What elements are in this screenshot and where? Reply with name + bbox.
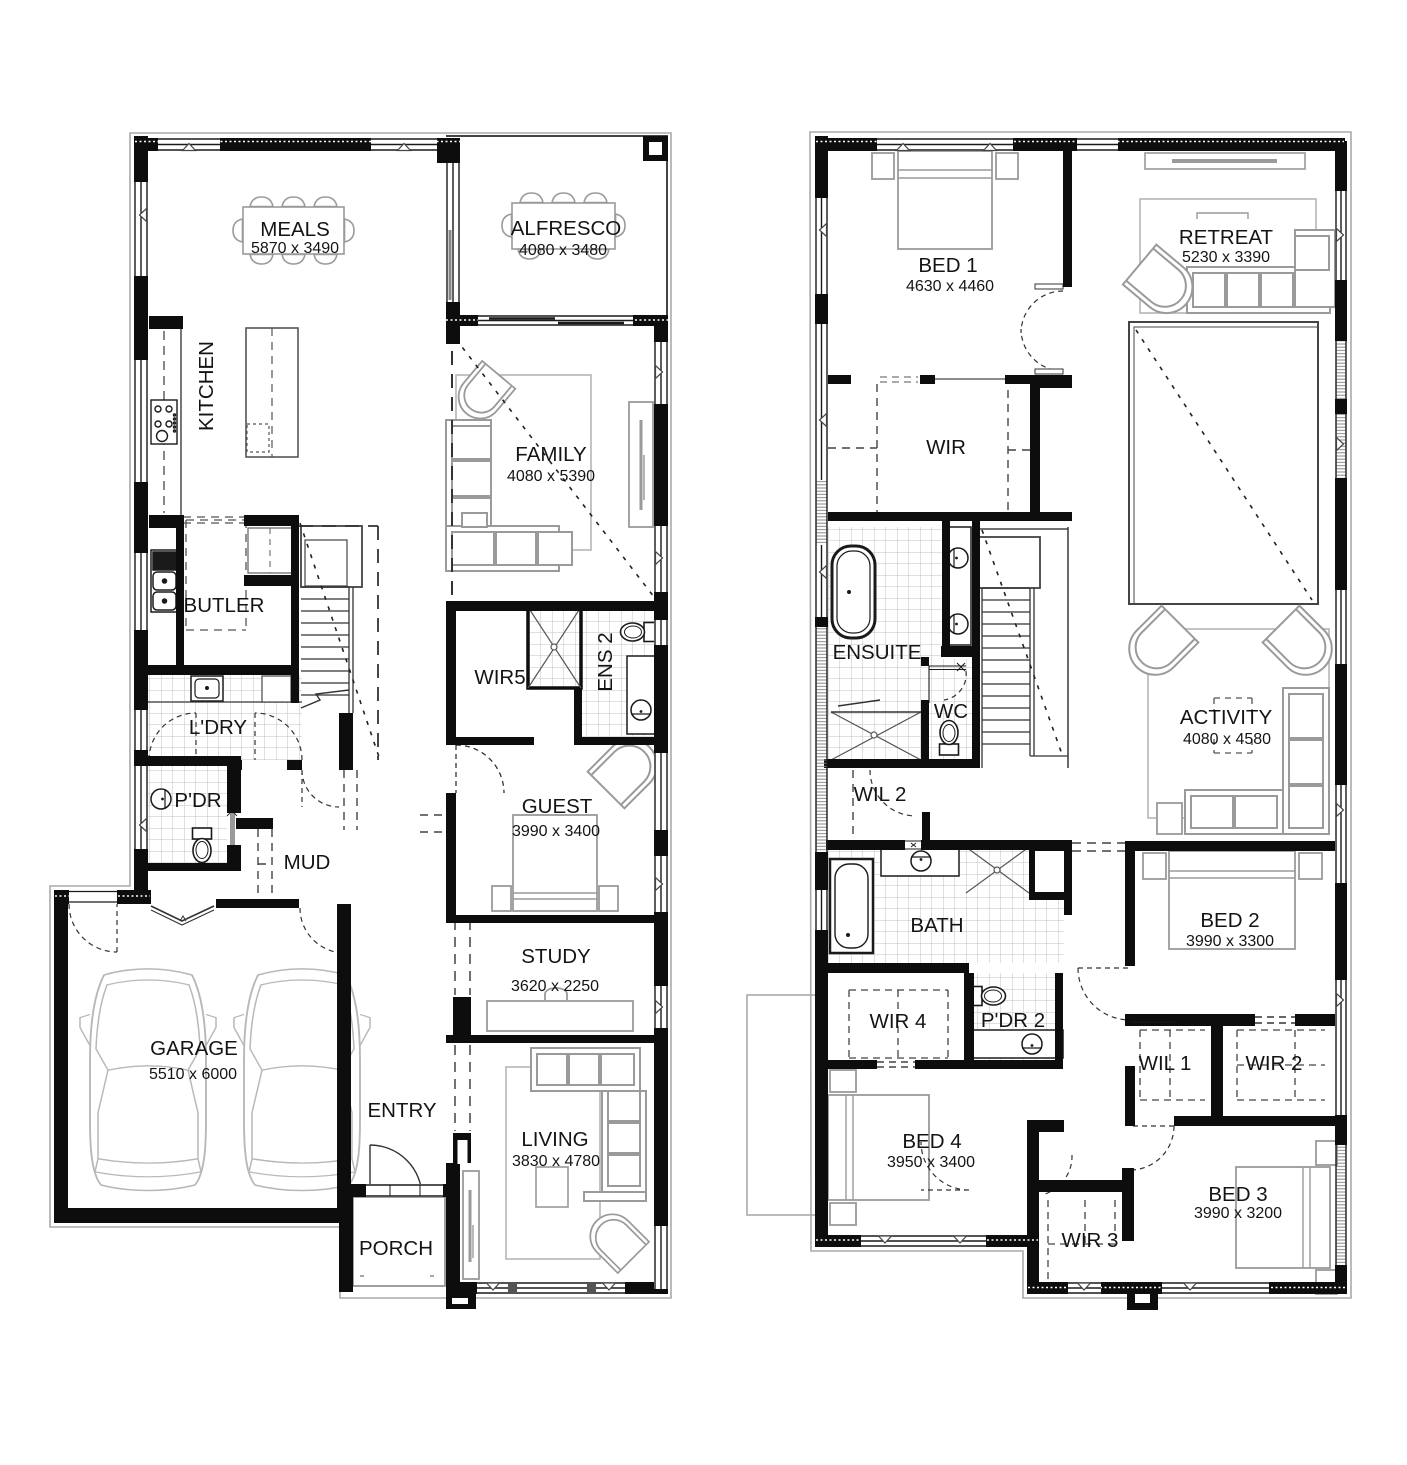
svg-text:WIL 2: WIL 2 <box>854 783 907 806</box>
svg-text:4080 x 5390: 4080 x 5390 <box>507 468 595 485</box>
svg-text:STUDY: STUDY <box>521 945 591 968</box>
svg-text:4080 x 3480: 4080 x 3480 <box>519 242 607 259</box>
svg-text:MUD: MUD <box>284 851 331 874</box>
svg-text:5230 x 3390: 5230 x 3390 <box>1182 249 1270 266</box>
svg-text:4080 x 4580: 4080 x 4580 <box>1183 731 1271 748</box>
svg-text:FAMILY: FAMILY <box>515 443 587 466</box>
svg-text:WIR 4: WIR 4 <box>870 1010 927 1033</box>
svg-text:BED 2: BED 2 <box>1200 909 1259 932</box>
svg-text:BED 4: BED 4 <box>902 1130 961 1153</box>
svg-text:MEALS: MEALS <box>260 218 330 241</box>
svg-text:3990 x 3300: 3990 x 3300 <box>1186 933 1274 950</box>
svg-text:WIR 3: WIR 3 <box>1062 1229 1119 1252</box>
svg-text:3620 x 2250: 3620 x 2250 <box>511 978 599 995</box>
svg-text:5510 x 6000: 5510 x 6000 <box>149 1066 237 1083</box>
svg-text:GARAGE: GARAGE <box>150 1037 238 1060</box>
svg-text:LIVING: LIVING <box>521 1128 588 1151</box>
svg-text:ACTIVITY: ACTIVITY <box>1180 706 1273 729</box>
svg-text:BED 1: BED 1 <box>918 254 977 277</box>
svg-text:ALFRESCO: ALFRESCO <box>511 217 622 240</box>
svg-text:5870 x 3490: 5870 x 3490 <box>251 240 339 257</box>
svg-text:ENTRY: ENTRY <box>367 1099 436 1122</box>
svg-text:ENSUITE: ENSUITE <box>833 641 922 664</box>
svg-text:BUTLER: BUTLER <box>184 594 265 617</box>
svg-text:WIR5: WIR5 <box>474 666 525 689</box>
svg-text:4630 x 4460: 4630 x 4460 <box>906 278 994 295</box>
svg-text:BED 3: BED 3 <box>1208 1183 1267 1206</box>
svg-text:P'DR 2: P'DR 2 <box>981 1009 1045 1032</box>
svg-text:3990 x 3200: 3990 x 3200 <box>1194 1205 1282 1222</box>
svg-text:GUEST: GUEST <box>522 795 593 818</box>
svg-text:L'DRY: L'DRY <box>189 716 248 739</box>
svg-text:KITCHEN: KITCHEN <box>195 341 218 431</box>
svg-text:WIR: WIR <box>926 436 966 459</box>
svg-text:P'DR: P'DR <box>174 789 221 812</box>
svg-text:3830 x 4780: 3830 x 4780 <box>512 1153 600 1170</box>
svg-text:PORCH: PORCH <box>359 1237 433 1260</box>
svg-text:3990 x 3400: 3990 x 3400 <box>512 823 600 840</box>
svg-text:ENS 2: ENS 2 <box>594 632 617 691</box>
svg-text:WIR 2: WIR 2 <box>1246 1052 1303 1075</box>
svg-text:BATH: BATH <box>910 914 963 937</box>
svg-text:3950 x 3400: 3950 x 3400 <box>887 1154 975 1171</box>
svg-text:RETREAT: RETREAT <box>1179 226 1274 249</box>
svg-text:WIL 1: WIL 1 <box>1139 1052 1192 1075</box>
svg-text:WC: WC <box>934 700 968 723</box>
